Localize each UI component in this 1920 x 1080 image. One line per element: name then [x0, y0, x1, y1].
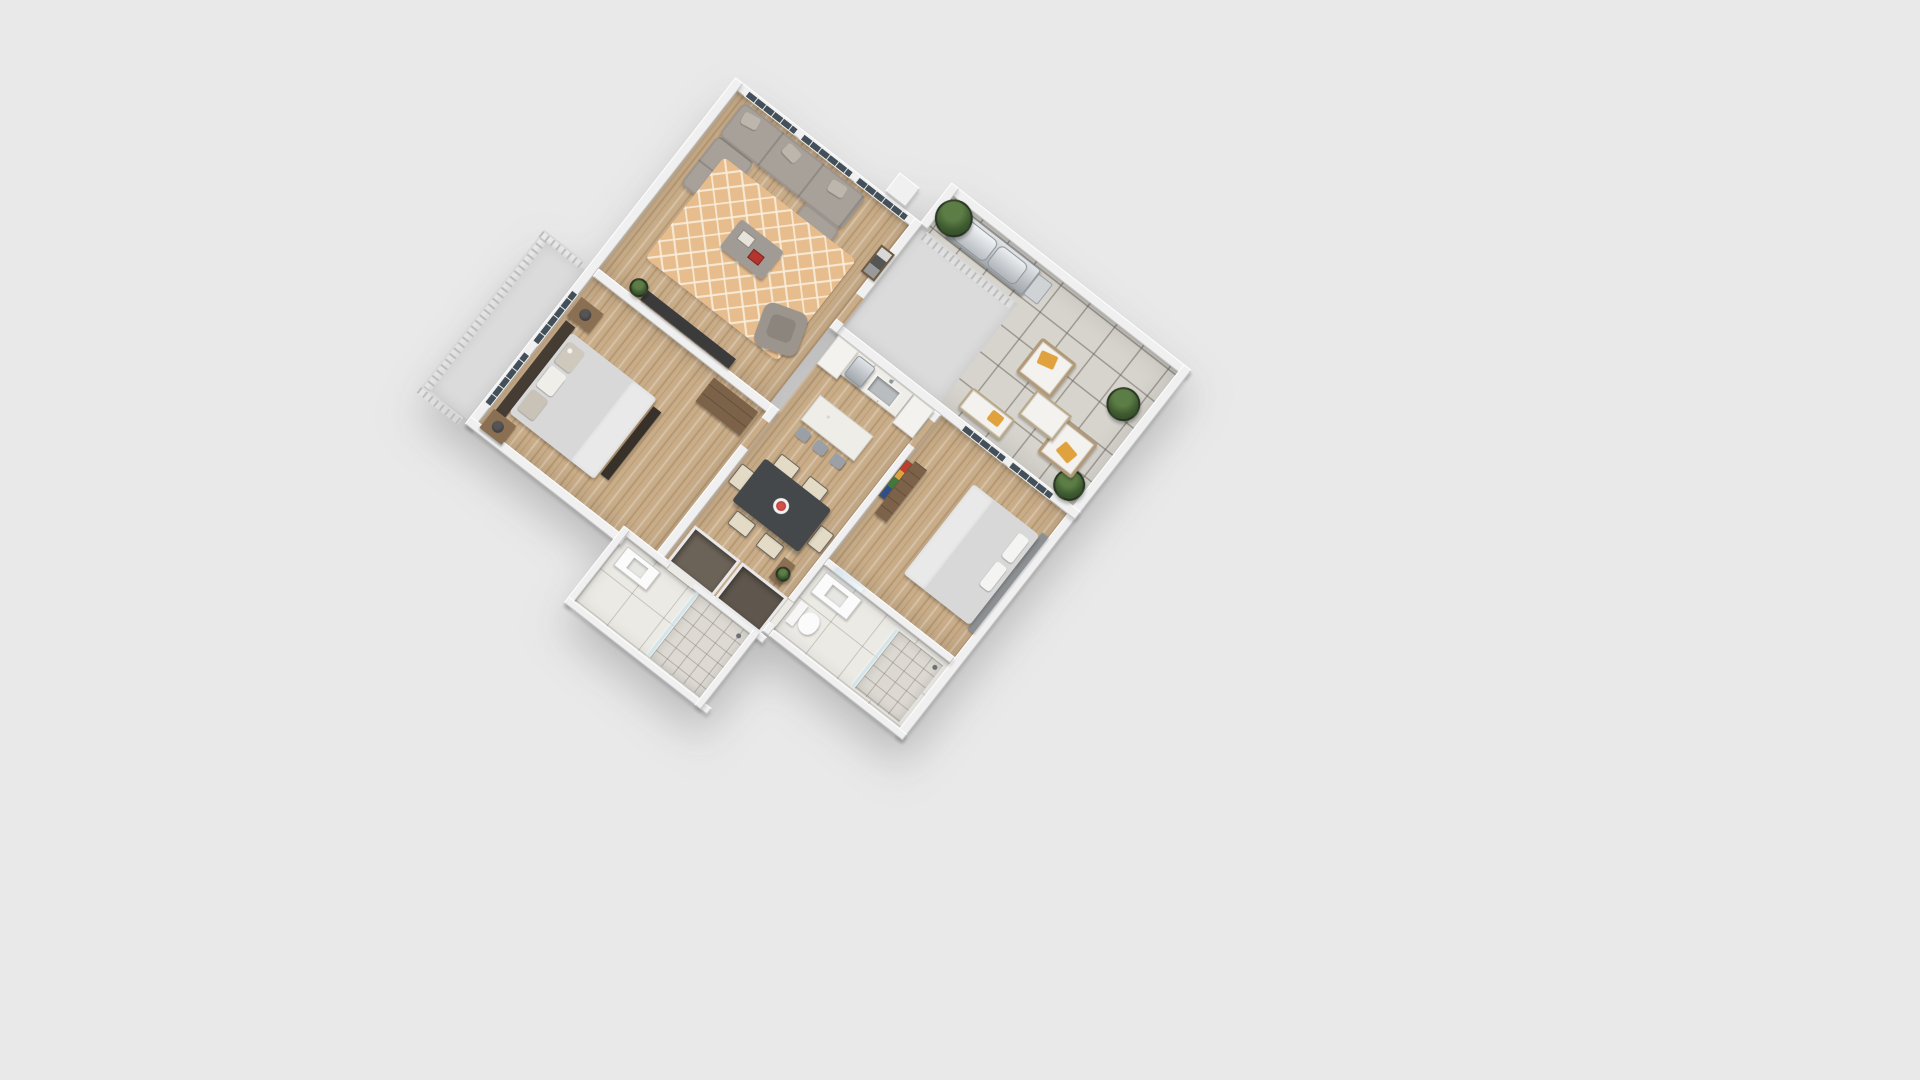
- coffee-table-book-1: [736, 229, 756, 248]
- master-lamp-1: [577, 307, 594, 324]
- bench-pillow: [986, 409, 1004, 427]
- coffee-table-book-2: [747, 249, 765, 266]
- lounge-pillow-1: [1036, 350, 1058, 370]
- render-canvas: [0, 0, 1920, 1080]
- bath1-sink: [824, 584, 848, 607]
- lounge-pillow-2: [1055, 441, 1077, 464]
- plan-geometry: [415, 38, 1191, 820]
- sofa-pillow-2: [781, 142, 803, 164]
- sofa-pillow-3: [826, 179, 848, 200]
- master-lamp-2: [489, 418, 506, 435]
- floor-plan: [368, 1, 1192, 820]
- armchair-seat-pillow: [765, 313, 798, 344]
- sofa-pillow-1: [740, 111, 762, 131]
- bath2-sink: [626, 558, 648, 579]
